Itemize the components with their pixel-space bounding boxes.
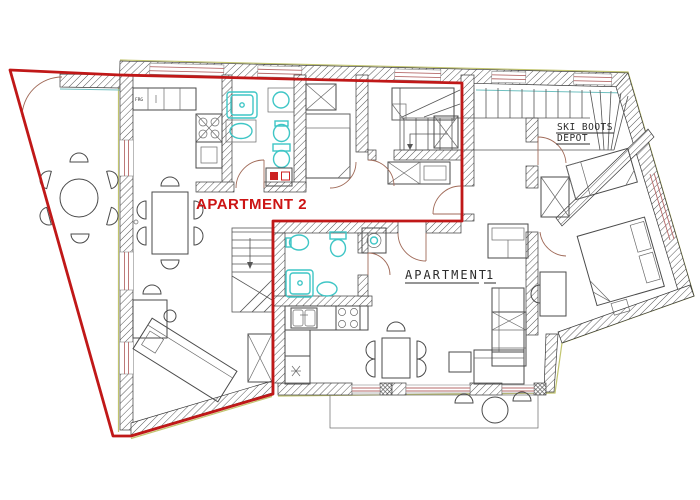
bath-bedroomA-wall: [294, 75, 306, 188]
sink-icon: [317, 282, 337, 296]
top-wall: [120, 61, 628, 87]
door-swing-icon: [368, 253, 390, 275]
chair-icon: [455, 394, 473, 403]
fridge-label: FRG: [135, 97, 143, 103]
bed-icon: [392, 88, 454, 120]
door-swing-icon: [398, 233, 426, 261]
apt2-bathroom: [226, 88, 294, 188]
sink-icon: [230, 124, 252, 139]
bed-icon: [306, 114, 350, 178]
apartment1-number: 1: [486, 268, 495, 282]
cabinet-icon: [285, 356, 310, 384]
door-swing-icon: [330, 162, 356, 188]
balcony-table-icon: [482, 397, 508, 423]
door-swing-icon: [433, 186, 461, 214]
chair-icon: [70, 153, 88, 162]
walls: [60, 61, 694, 435]
left-wall: [120, 75, 134, 430]
hall-depot-wall: [526, 118, 538, 142]
ski-depot-label-line2: DEPOT: [557, 133, 588, 144]
cabinet-icon: [488, 224, 528, 258]
bidet-icon: [274, 121, 290, 142]
door-swing-icon: [368, 160, 394, 186]
sink-icon: [291, 308, 317, 328]
apartment1-label: APARTMENT: [405, 268, 488, 282]
sink-icon: [273, 92, 289, 108]
hall-wardrobe-icon: [388, 162, 450, 184]
apartment2-label: APARTMENT 2: [196, 196, 307, 213]
apt1-dining: [366, 322, 426, 378]
toilet-icon: [273, 144, 290, 168]
door-swing-icon: [540, 232, 566, 256]
boiler-icon: [291, 366, 301, 376]
desk-icon: [133, 285, 176, 338]
shower-icon: [227, 92, 257, 118]
wardrobe-icon: [434, 116, 458, 148]
wardrobe-icon: [248, 334, 272, 382]
oven-icon: [196, 142, 222, 168]
east-wall: [616, 73, 694, 300]
bedroomA-bedroomB-wall: [356, 75, 368, 152]
counter-icon: [285, 306, 368, 330]
apt1-bathroom: [286, 228, 390, 297]
floor-plan: APARTMENT 2 APARTMENT 1 SKI BOOTS DEPOT …: [0, 0, 700, 500]
apt2-slant-wall: [131, 381, 272, 435]
round-table-icon: [60, 179, 98, 217]
apt-separation-wall: [273, 221, 398, 233]
dining-table-icon: [137, 177, 203, 269]
door-swing-icon: [22, 77, 62, 117]
apt2-bedroom-a: [306, 84, 356, 188]
dining-table-icon: [382, 338, 410, 378]
balcony: [330, 392, 538, 428]
toilet-icon: [330, 232, 346, 257]
chaise-icon: [133, 318, 237, 402]
apt2-kitchen: [133, 88, 222, 168]
bidet-icon: [286, 235, 309, 250]
chair-icon: [71, 234, 89, 243]
south-wall: [278, 383, 546, 395]
coffee-table-icon: [449, 352, 471, 372]
ski-depot-label-line1: SKI BOOTS: [557, 122, 613, 133]
apt1-kitchen: [285, 306, 368, 384]
cabinet-icon: [285, 330, 310, 356]
apt2-internal-stairs: [232, 228, 272, 312]
wardrobe-icon: [541, 177, 569, 217]
stove-icon: [196, 114, 222, 142]
wardrobe-icon: [306, 84, 336, 110]
stove-icon: [336, 306, 360, 330]
door-handle-icon: [134, 220, 138, 224]
bedroom-south-wall: [558, 285, 694, 343]
sofa-icon: [474, 288, 524, 384]
shower-icon: [286, 270, 313, 297]
door-swing-icon: [236, 160, 264, 188]
